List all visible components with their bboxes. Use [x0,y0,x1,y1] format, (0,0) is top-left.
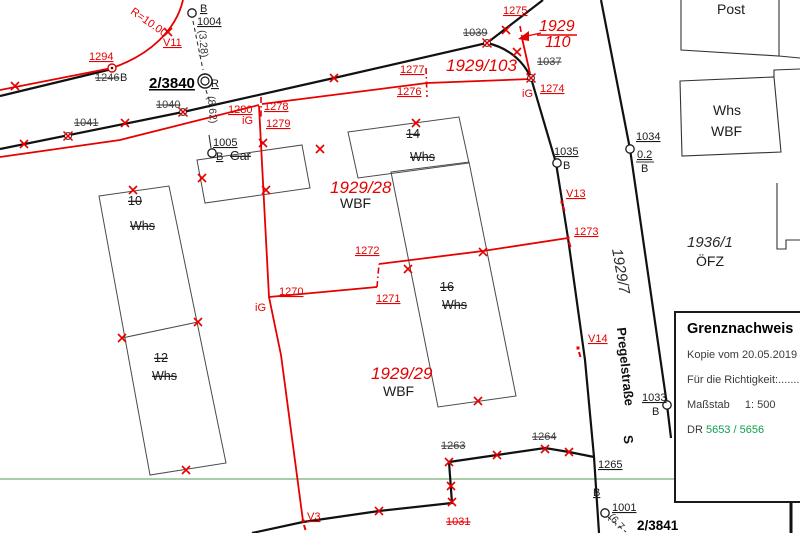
struck-boundary-point-icon [64,132,73,141]
wbf-building-notch [774,69,800,77]
red-dashdot-point-icon [577,347,581,358]
map-label-1035-34: 1035 [554,146,578,158]
map-label-1272-11: 1272 [355,245,379,257]
map-label-wbf-57: WBF [383,383,414,399]
new-boundary-lines [0,0,577,521]
map-label-2-3841-44: 2/3841 [637,518,679,533]
info-correctness-line: Für die Richtigkeit:........ [687,374,800,386]
map-label-v11-0: V11 [163,37,182,49]
map-label-b-37: B [652,406,659,418]
map-label-b-35: B [563,160,570,172]
cancelled-point-x-icon [316,145,324,153]
map-label-1004-28: 1004 [197,16,221,28]
boundary-point-circle-icon [188,9,196,17]
map-label-14-64: 14 [406,127,420,141]
map-label-b-38: B [593,487,600,499]
map-label-ig-18: iG [522,88,533,100]
map-label-1271-10: 1271 [376,293,400,305]
tick-1276 [426,68,427,97]
dr-value: 5653 / 5656 [706,424,764,436]
cancelled-point-x-icon [198,174,206,182]
post-building-extension [779,56,800,58]
map-label-r-41: R [211,78,219,90]
map-label-1929-103-45: 1929/103 [446,56,517,75]
map-label-1037-23: 1037 [537,56,561,68]
grenznachweis-info-box: Grenznachweis Kopie vom 20.05.2019 Für d… [674,311,800,503]
map-label-110-49: 110 [545,34,571,51]
map-label-1040-20: 1040 [156,99,180,111]
map-label--8.62--70: (8.62) [205,96,219,124]
map-label-b-33: B [641,163,648,175]
scale-value: 1: 500 [745,399,776,411]
dr-label: DR [687,424,703,436]
map-label-1294-1: 1294 [89,51,113,63]
map-label-b-30: B [216,151,223,163]
map-label-1246-19: 1246 [95,72,119,84]
map-label-1929-29-47: 1929/29 [371,364,433,383]
map-label-1263-24: 1263 [441,440,465,452]
map-label-1929-48: 1929 [539,18,575,35]
struck-boundary-point-icon [483,39,492,48]
map-label-1264-25: 1264 [532,431,556,443]
map-label-s-59: S [621,434,637,445]
building-outlines [99,117,516,475]
boundary-point-circle-icon [626,145,634,153]
map-label-ig-17: iG [255,302,266,314]
map-label-whs-65: Whs [410,150,435,164]
boundary-point-circle-icon [601,509,609,517]
map-label-ig-16: iG [242,115,253,127]
map-label-1279-4: 1279 [266,118,290,130]
map-label-1270-9: 1270 [279,286,303,298]
info-scale-line: Maßstab 1: 500 [687,399,800,411]
map-label-10-60: 10 [128,194,142,208]
map-label-wbf-56: WBF [340,195,371,211]
map-label-1039-22: 1039 [463,27,487,39]
map-label-whs-67: Whs [442,298,467,312]
map-label-whs-63: Whs [152,369,177,383]
cancelled-point-x-icon [129,186,137,194]
struck-boundary-point-icon [527,74,536,83]
boundary-point-circle-icon [208,149,216,157]
map-label-1031-26: 1031 [446,516,470,528]
reference-point-r-icon [198,74,212,88]
map-label-1034-31: 1034 [636,131,660,143]
info-box-title: Grenznachweis [687,321,800,337]
map-label-1274-8: 1274 [540,83,564,95]
map-label-whs-61: Whs [130,219,155,233]
map-label-pregelstraße-58: Pregelstraße [614,327,637,407]
map-label-gar-68: Gar [230,149,251,163]
info-copy-line: Kopie vom 20.05.2019 [687,349,800,361]
map-label-1936-1-50: 1936/1 [687,234,733,251]
red-boundary-1272-1273 [379,238,568,264]
map-label-1277-5: 1277 [400,64,424,76]
map-label-v14-14: V14 [588,333,608,345]
map-label--3.28--69: (3.28) [196,30,210,58]
map-label-öfz-55: ÖFZ [696,252,724,269]
info-dr-line: DR 5653 / 5656 [687,424,800,436]
map-label-1265-40: 1265 [598,459,622,471]
point-1005-tick [209,135,211,148]
map-label-post-52: Post [717,1,745,17]
boundary-point-dot-icon [108,64,116,72]
map-label-r=10.00-72: R=10.00 [128,6,169,40]
partial-building-outline [777,183,800,249]
building-10-12-divider [122,322,198,338]
red-boundary-west [0,105,259,157]
map-label-16-66: 16 [440,280,454,294]
map-label-b-27: B [200,3,207,15]
map-label-1276-6: 1276 [397,86,421,98]
building-10-12-outline [99,186,226,475]
map-label-1041-21: 1041 [74,117,98,129]
map-label-2-3840-43: 2/3840 [149,75,195,92]
scale-label: Maßstab [687,399,730,411]
cancelled-point-x-icon [513,48,521,56]
tick-1275 [520,26,523,43]
map-label-b-42: B [120,72,127,84]
map-label-1005-29: 1005 [213,137,237,149]
map-label-1033-36: 1033 [642,392,666,404]
street-east-line [601,0,671,438]
boundary-point-circle-icon [553,159,561,167]
map-label-12-62: 12 [154,351,168,365]
map-label-1278-3: 1278 [264,101,288,113]
red-boundary-1275-1274 [522,38,531,78]
map-label-wbf-54: WBF [711,123,742,139]
map-label-0.2-32: 0.2 [637,149,652,161]
map-label-v3-15: V3 [307,511,320,523]
map-label-1273-12: 1273 [574,226,598,238]
arrow-head-icon [518,31,529,41]
map-label-1275-7: 1275 [503,5,527,17]
tick-1271-1272 [377,264,379,287]
map-label-1929-7-51: 1929/7 [608,247,633,296]
map-label-whs-53: Whs [713,102,741,118]
cadastral-map-page: V111294128012781279127712761275127412701… [0,0,800,533]
map-label-v13-13: V13 [566,188,586,200]
